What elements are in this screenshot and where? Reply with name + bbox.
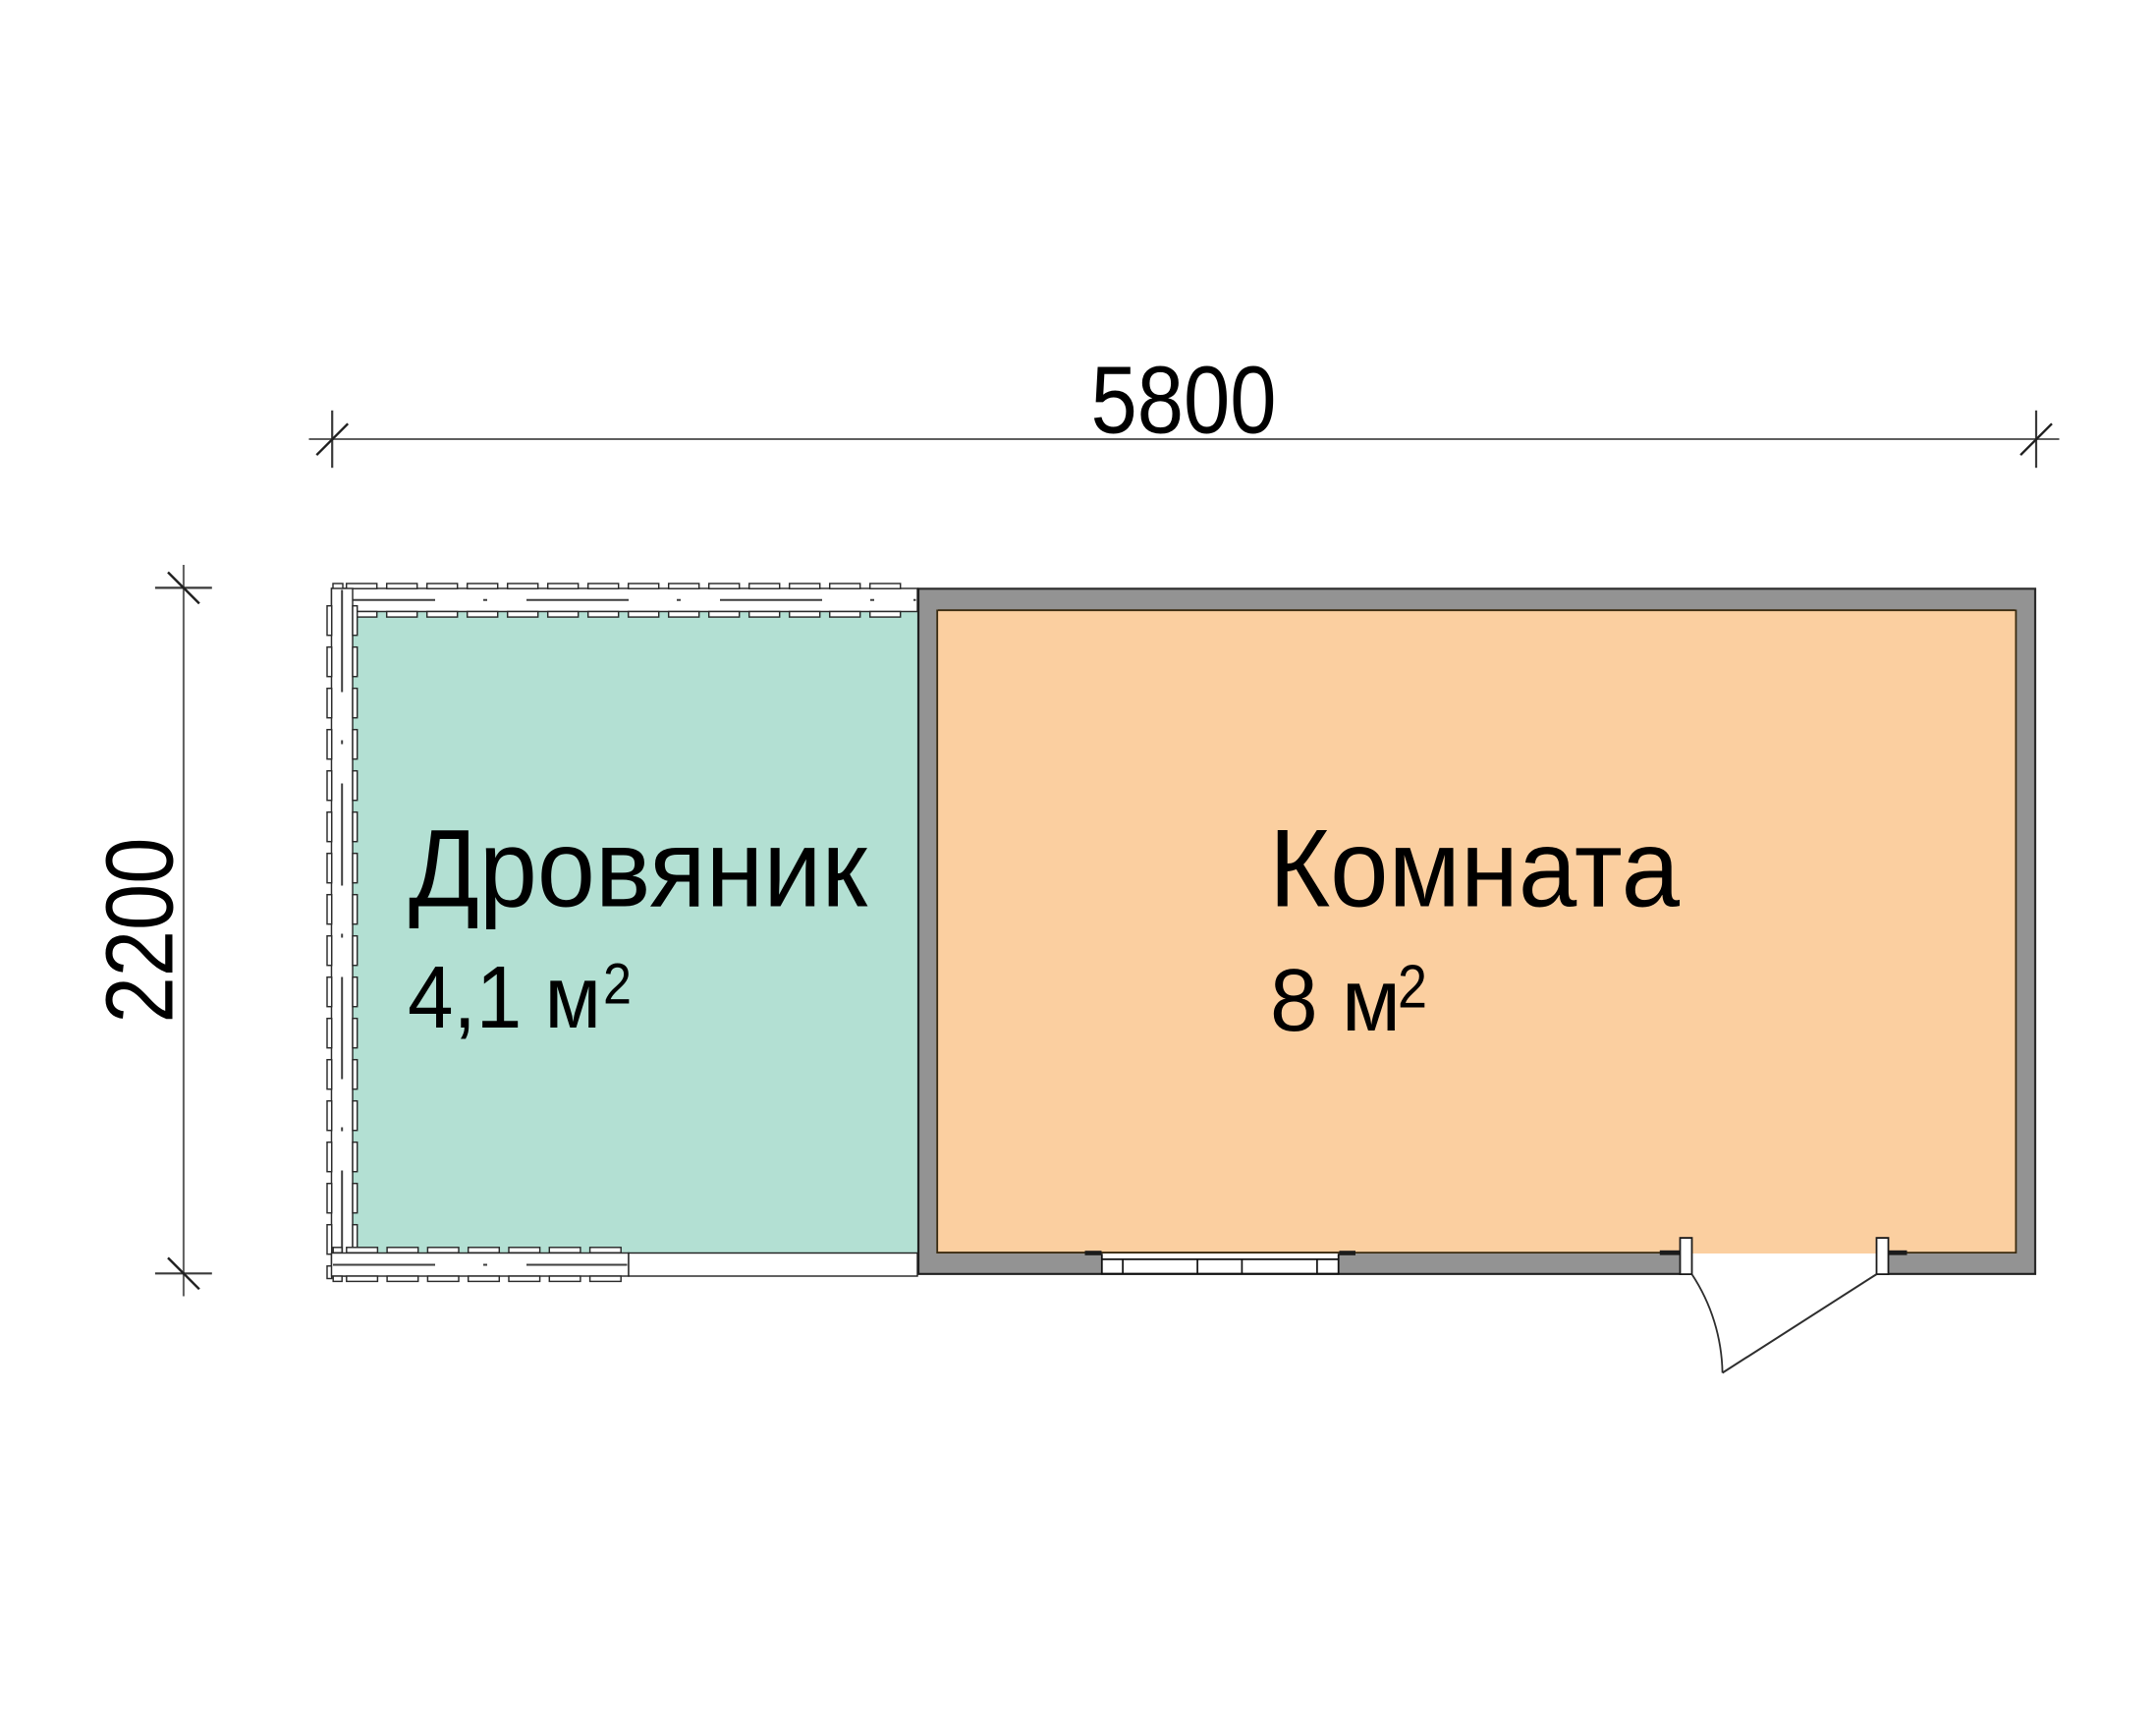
svg-text:8 м: 8 м bbox=[1270, 952, 1401, 1050]
svg-text:2: 2 bbox=[1398, 954, 1427, 1022]
svg-text:4,1 м: 4,1 м bbox=[408, 949, 601, 1047]
svg-text:2200: 2200 bbox=[86, 838, 193, 1024]
svg-text:5800: 5800 bbox=[1091, 347, 1277, 454]
svg-text:2: 2 bbox=[603, 953, 632, 1017]
svg-text:Дровяник: Дровяник bbox=[409, 808, 868, 930]
svg-text:Комната: Комната bbox=[1269, 808, 1681, 930]
